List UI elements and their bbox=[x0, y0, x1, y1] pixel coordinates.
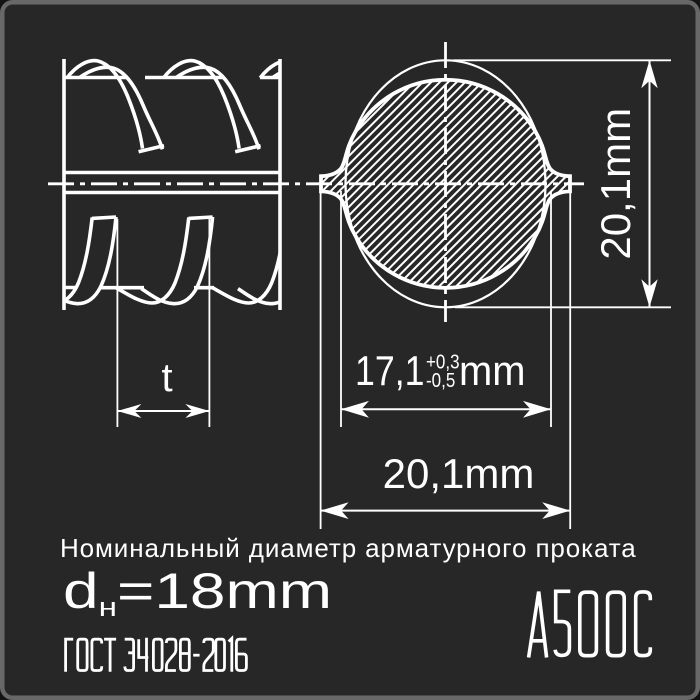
svg-text:20,1mm: 20,1mm bbox=[592, 108, 639, 260]
svg-text:20,1mm: 20,1mm bbox=[383, 450, 535, 497]
svg-text:t: t bbox=[161, 356, 172, 400]
svg-text:Номинальный диаметр арматурног: Номинальный диаметр арматурного проката bbox=[60, 533, 637, 563]
svg-text:17,1: 17,1 bbox=[355, 348, 424, 394]
svg-text:mm: mm bbox=[459, 347, 525, 394]
svg-text:-0,5: -0,5 bbox=[426, 369, 455, 392]
